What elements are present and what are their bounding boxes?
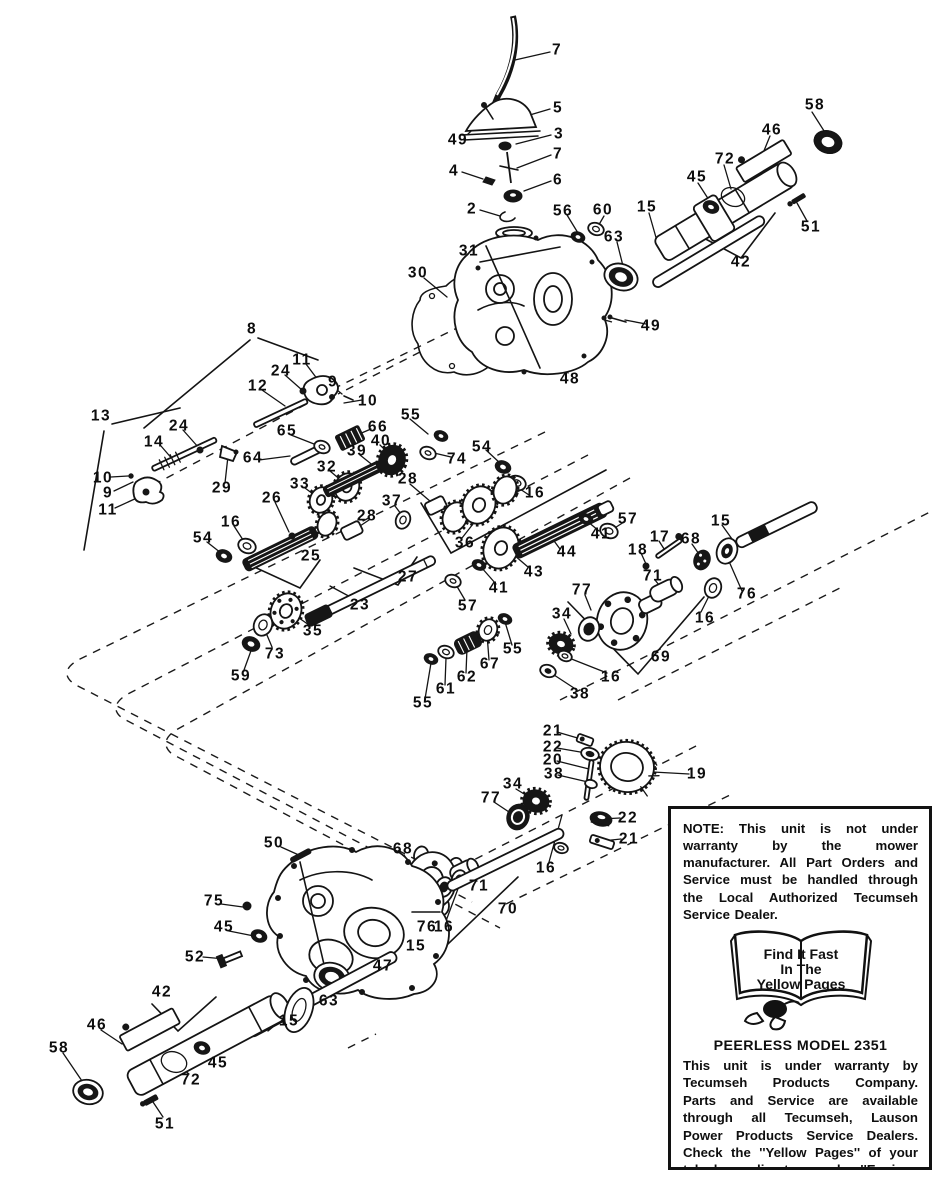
upper-housing	[412, 235, 626, 375]
axle-horn-upper	[570, 127, 845, 295]
shift-forks	[129, 376, 353, 504]
warranty-note-text: NOTE: This unit is not under warranty by…	[683, 820, 918, 923]
ring-gear-group	[504, 734, 664, 855]
walking-fingers-icon	[745, 1000, 799, 1029]
yellow-pages-book-icon: Find It Fast In The Yellow Pages	[717, 927, 885, 1031]
badge-line2: In The	[780, 961, 821, 977]
parts-diagram-page: 7558463497724456152566051633142304981124…	[0, 0, 935, 1200]
gear-cluster	[214, 425, 620, 666]
axle-horn-lower	[70, 950, 398, 1107]
badge-line1: Find It Fast	[763, 946, 838, 962]
badge-line3: Yellow Pages	[756, 976, 845, 992]
shift-lever-assembly	[462, 16, 540, 239]
warranty-body-text: This unit is under warranty by Tecumseh …	[683, 1057, 918, 1170]
yellow-pages-badge: Find It Fast In The Yellow Pages	[683, 927, 918, 1036]
lower-housing	[216, 846, 449, 999]
warranty-note-box: NOTE: This unit is not under warranty by…	[668, 806, 932, 1170]
model-title: PEERLESS MODEL 2351	[683, 1038, 918, 1054]
